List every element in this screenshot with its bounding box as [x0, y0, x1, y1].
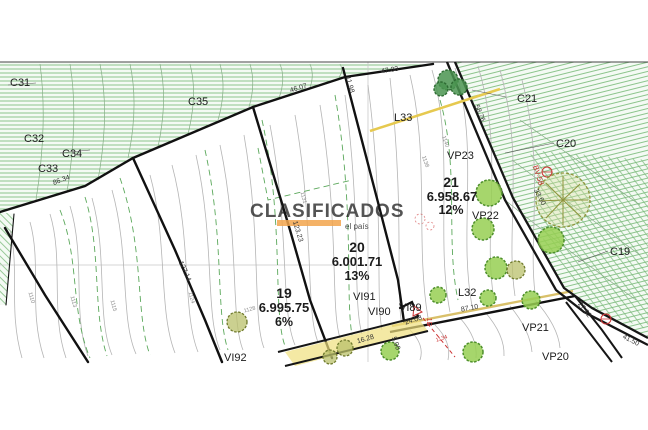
label-vp22: VP22	[472, 210, 499, 222]
watermark-subtext: el país	[345, 222, 369, 231]
elev-1128: 1128	[243, 306, 256, 315]
watermark-text: CLASIFICADOS	[250, 201, 405, 222]
lot-19-area: 6.995.75	[259, 300, 310, 315]
label-c32: C32	[24, 133, 44, 145]
label-l33: L33	[394, 112, 412, 124]
label-vp20: VP20	[542, 351, 569, 363]
label-c34: C34	[62, 148, 82, 160]
label-c35: C35	[188, 96, 208, 108]
dim-41-50: 41.50	[621, 334, 640, 348]
elev-1110: 1110	[27, 291, 36, 304]
label-c20: C20	[556, 138, 576, 150]
label-vi92: VI92	[224, 352, 247, 364]
label-c33: C33	[38, 163, 58, 175]
lot-20-area: 6.001.71	[332, 254, 383, 269]
elev-1113: 1113	[69, 295, 78, 308]
lot-19-slope: 6%	[275, 315, 293, 329]
dim-127-14: 127.14	[177, 260, 192, 283]
site-plan-canvas: CLASIFICADOS el país C31 C32 C33 C34 C35…	[0, 0, 648, 430]
label-vp23: VP23	[447, 150, 474, 162]
lot-19-number: 19	[276, 285, 292, 301]
corner-marker-label: 1E	[425, 318, 432, 327]
label-l32: L32	[458, 287, 476, 299]
label-c19: C19	[610, 246, 630, 258]
label-c21: C21	[517, 93, 537, 105]
watermark-bar	[277, 220, 341, 226]
label-vi91: VI91	[353, 291, 376, 303]
lot-20-block: 20 6.001.71 13%	[332, 239, 383, 283]
elev-1140: 1140	[440, 135, 450, 148]
label-vp21: VP21	[522, 322, 549, 334]
lot-21-slope: 12%	[438, 203, 463, 217]
dim-47-03: 47.03	[381, 66, 400, 76]
lot-21-block: 21 6.958.67 12%	[427, 174, 478, 217]
lot-21-number: 21	[443, 174, 459, 190]
watermark: CLASIFICADOS el país	[250, 201, 405, 231]
dim-11-98: 11.98	[344, 75, 355, 93]
elev-1115: 1115	[109, 299, 118, 312]
elev-1138: 1138	[420, 155, 430, 168]
cadastral-drawing: CLASIFICADOS el país C31 C32 C33 C34 C35…	[0, 0, 648, 430]
lot-20-slope: 13%	[344, 269, 369, 283]
lot-20-number: 20	[349, 239, 365, 255]
label-c31: C31	[10, 77, 30, 89]
label-vi90: VI90	[368, 306, 391, 318]
lot-19-block: 19 6.995.75 6%	[259, 285, 310, 329]
label-vi89: VI89	[399, 302, 422, 314]
lot-21-area: 6.958.67	[427, 189, 478, 204]
